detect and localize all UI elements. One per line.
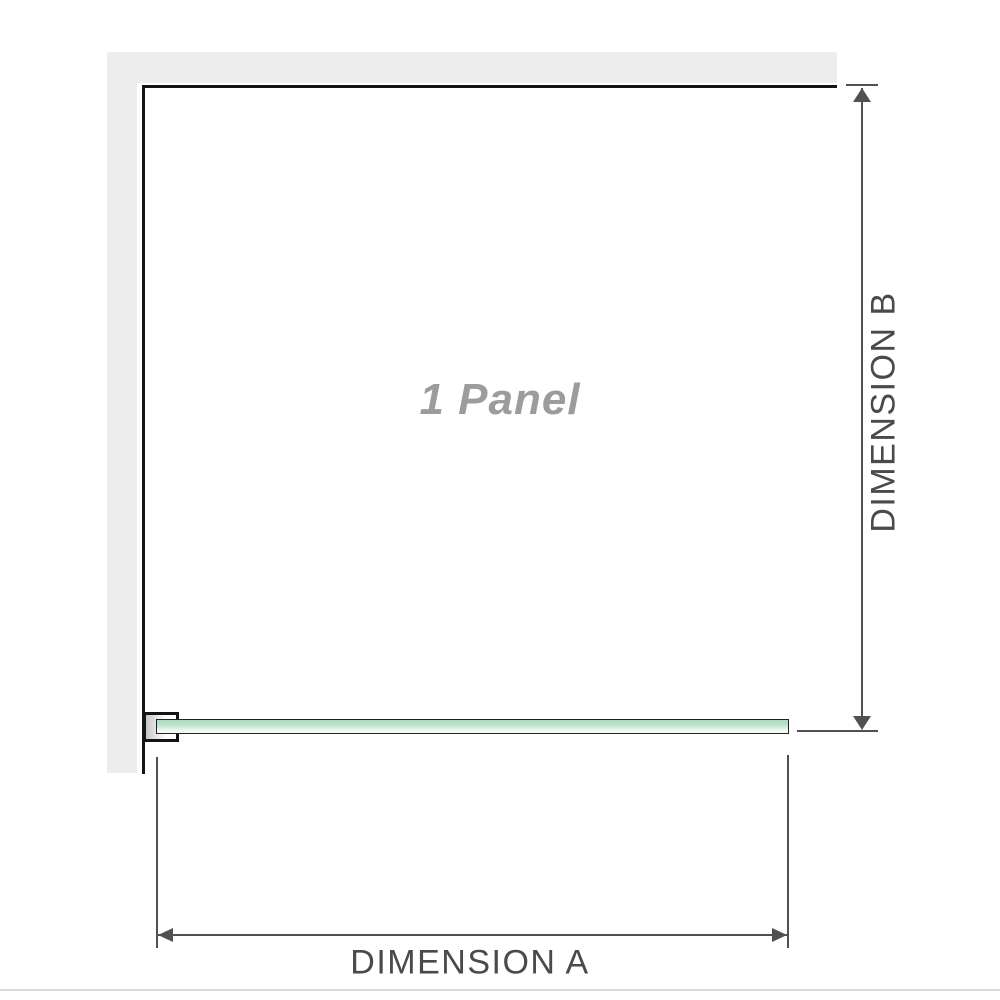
dimension-b-line <box>861 88 863 718</box>
dimension-b-bottom-tick <box>797 730 878 732</box>
arrow-left-icon <box>158 928 173 942</box>
dimension-a-left-extension <box>156 757 158 948</box>
wall-left-strip <box>107 52 137 773</box>
dimension-b-top-tick <box>846 84 878 86</box>
arrow-down-icon <box>853 716 871 730</box>
wall-top-strip <box>107 52 837 83</box>
arrow-right-icon <box>772 928 787 942</box>
wall-inner-edge-left <box>142 85 145 774</box>
glass-panel-bar <box>156 719 789 734</box>
dimension-a-right-extension <box>787 755 789 948</box>
dimension-b-label: DIMENSION B <box>865 291 904 532</box>
panel-count-label: 1 Panel <box>419 375 580 425</box>
wall-inner-edge-top <box>142 85 837 88</box>
diagram-canvas: 1 Panel DIMENSION B DIMENSION A <box>0 0 1000 1000</box>
dimension-a-label: DIMENSION A <box>350 944 589 983</box>
page-separator-line <box>0 989 1000 991</box>
dimension-a-line <box>158 934 788 936</box>
arrow-up-icon <box>853 88 871 102</box>
